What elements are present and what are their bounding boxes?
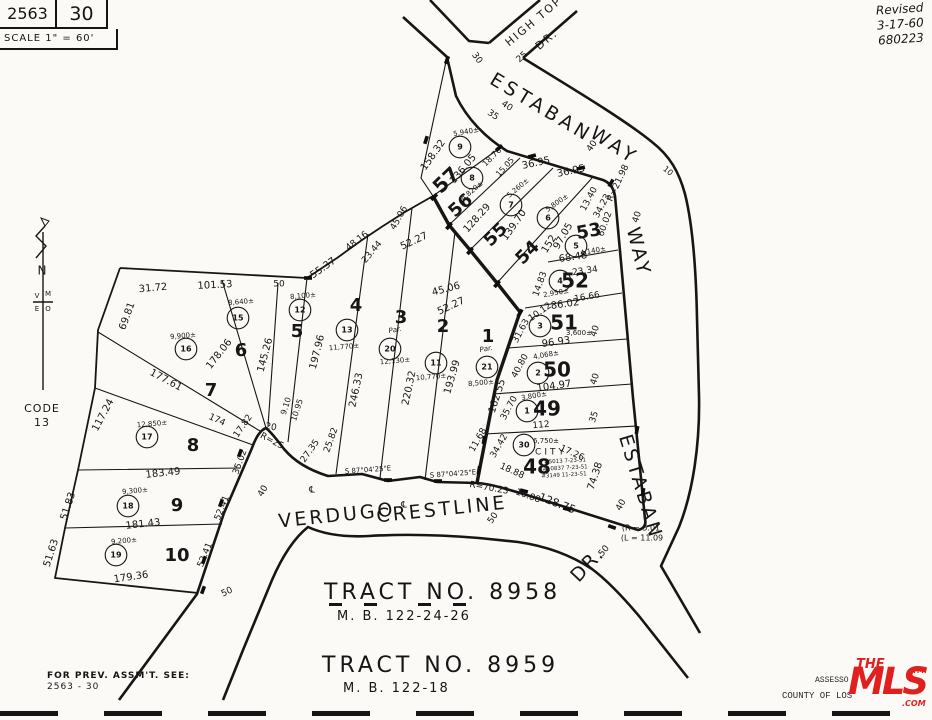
boundary-tick-mark — [477, 466, 482, 475]
map-label-note: V — [35, 292, 40, 300]
map-label-apn: 3 — [537, 322, 543, 331]
map-label-note: N — [38, 264, 47, 278]
boundary-tick-mark — [434, 479, 442, 483]
map-label-apn: 9 — [457, 143, 463, 152]
map-label-note: O — [45, 305, 51, 313]
map-label-dim: 52.27 — [399, 230, 430, 252]
map-label-dim: 183.49 — [145, 466, 181, 481]
map-label-apn: 20 — [384, 345, 396, 354]
map-label-lot: 4 — [350, 295, 363, 316]
map-label-area: 3,600± — [566, 329, 592, 337]
map-label-apn: 6 — [545, 214, 551, 223]
map-label-note: Par. — [479, 344, 493, 354]
map-label-dim: 45.06 — [431, 280, 462, 298]
map-label-note: E — [35, 305, 39, 313]
map-label-dim: 101.53 — [197, 279, 233, 292]
map-label-dim: 246.33 — [347, 372, 365, 409]
map-label-apn: 2 — [535, 369, 541, 378]
map-label-dim: 52.27 — [436, 295, 467, 317]
map-label-apn: 18 — [122, 502, 134, 511]
map-label-apn: 21 — [481, 363, 493, 372]
map-label-dim: (L = 11.09 — [621, 534, 663, 543]
map-label-area: 9,300± — [122, 486, 149, 496]
map-label-apn: 12 — [294, 306, 305, 315]
map-label-dim: 20 — [264, 422, 277, 434]
map-label-apn: 11 — [430, 359, 442, 368]
map-label-dim: S 87°04'25"E — [345, 464, 392, 475]
plat-map-canvas: HIGH TOPDR.ESTABANWAYWAYESTABANVERDUGOCR… — [0, 0, 932, 720]
map-label-lot: 9 — [171, 495, 184, 516]
map-label-dim: 35 — [588, 410, 601, 424]
map-label-lot: 50 — [543, 358, 571, 382]
map-label-lot: 5 — [291, 321, 304, 342]
map-label-note: ℄ — [308, 486, 315, 496]
themls-logo: THE MLS TM .COM — [846, 655, 930, 713]
map-label-apn: 19 — [110, 551, 122, 560]
map-label-dim: 68.48 — [558, 250, 588, 265]
map-label-lot: 49 — [533, 397, 561, 421]
map-label-dim: 181.43 — [125, 517, 161, 532]
map-label-apn: 1 — [524, 407, 530, 416]
map-label-dim: 128.75 — [537, 491, 578, 517]
map-label-area: 2,950± — [543, 287, 570, 299]
map-label-note: #3149 11-23-51 — [541, 471, 587, 479]
map-label-apn: 13 — [341, 326, 352, 335]
map-label-apn: 8 — [469, 174, 475, 183]
map-label-apn: 15 — [232, 314, 244, 323]
map-label-dim: 174 — [207, 412, 227, 428]
map-label-dim: 16.88 — [514, 487, 542, 505]
boundary-tick-mark — [608, 524, 617, 530]
map-label-dim: S 87°04'25"E — [430, 468, 477, 479]
map-label-area: 10,770± — [416, 372, 447, 383]
map-label-area: 8,500± — [468, 378, 495, 388]
map-label-dim: (R = 5.01 — [622, 524, 660, 533]
themls-logo-com: .COM — [902, 699, 926, 708]
map-label-dim: 31.72 — [138, 282, 167, 295]
map-label-lot: 54 — [511, 236, 544, 269]
boundary-tick-mark — [200, 586, 206, 595]
map-label-dim: 69.81 — [117, 301, 137, 332]
map-label-apn: 5 — [573, 242, 579, 251]
map-label-dim: 179.36 — [113, 570, 149, 586]
map-label-street: WAY — [622, 225, 655, 279]
map-label-dim: 18.88 — [498, 462, 526, 482]
map-label-area: 12,130± — [380, 356, 411, 367]
map-label-dim: 55.37 — [308, 256, 338, 281]
map-label-dim: 15.05 — [494, 155, 516, 178]
map-label-dim: 197.96 — [308, 334, 327, 371]
map-label-dim: 178.06 — [204, 337, 234, 371]
map-label-area: 9,900± — [170, 331, 197, 341]
map-label-dim: 40 — [631, 210, 644, 224]
map-label-dim: 40 — [589, 372, 602, 386]
map-label-dim: 27.35 — [299, 438, 322, 465]
map-label-dim: 50 — [220, 585, 235, 599]
map-label-dim: 25.82 — [322, 426, 340, 454]
map-label-dim: 177.61 — [148, 367, 184, 393]
map-label-dim: 35 — [485, 108, 500, 123]
map-label-apn: 17 — [141, 433, 152, 442]
map-label-dim: 36.95 — [556, 163, 586, 180]
map-label-note: ℄ — [400, 501, 407, 511]
map-label-note: M — [45, 290, 51, 298]
map-label-lot: 55 — [479, 218, 512, 251]
assessor-map-page: { "header": {"book_no": "2563", "page_no… — [0, 0, 932, 720]
map-label-dim: 25 — [515, 50, 530, 65]
map-label-lot: 2 — [437, 316, 450, 337]
map-label-dim: 52.41 — [196, 541, 215, 569]
map-label-area: 5,260± — [506, 177, 531, 200]
map-label-dim: 74.38 — [586, 461, 605, 492]
map-label-lot: 10 — [164, 545, 189, 566]
map-label-area: 11,770± — [329, 342, 360, 353]
map-label-dim: 23.44 — [360, 239, 384, 265]
map-label-note: Par. — [388, 325, 402, 335]
map-label-dim: 40 — [256, 484, 271, 499]
map-label-dim: 52.41 — [213, 494, 232, 522]
map-label-area: 8,640± — [228, 297, 255, 307]
map-label-dim: 45.06 — [389, 204, 411, 232]
map-label-dim: 30 — [469, 51, 484, 66]
map-label-apn: 4 — [557, 277, 563, 286]
map-label-lot: 7 — [205, 380, 218, 401]
map-label-dim: 96.93 — [541, 335, 571, 350]
map-label-lot: 6 — [235, 340, 248, 361]
boundary-tick-mark — [304, 276, 312, 280]
map-label-apn: 7 — [508, 201, 514, 210]
map-label-dim: 40 — [614, 498, 628, 513]
map-label-lot: 8 — [187, 435, 200, 456]
map-label-apn: 16 — [180, 345, 192, 354]
trademark-symbol: TM — [912, 667, 924, 675]
map-label-lot: 53 — [575, 219, 603, 244]
map-label-dim: 50 — [273, 280, 285, 290]
map-label-apn: 30 — [518, 441, 530, 450]
map-label-dim: 112 — [532, 420, 550, 431]
map-label-dim: 117.24 — [90, 397, 116, 433]
map-label-area: 5,800± — [544, 192, 570, 213]
map-label-area: 6,750± — [533, 437, 559, 445]
boundary-tick-mark — [384, 478, 392, 482]
map-label-dim: 34.42 — [489, 433, 511, 460]
compass-north-arrow — [33, 218, 53, 390]
map-label-dim: 51.83 — [59, 491, 78, 522]
